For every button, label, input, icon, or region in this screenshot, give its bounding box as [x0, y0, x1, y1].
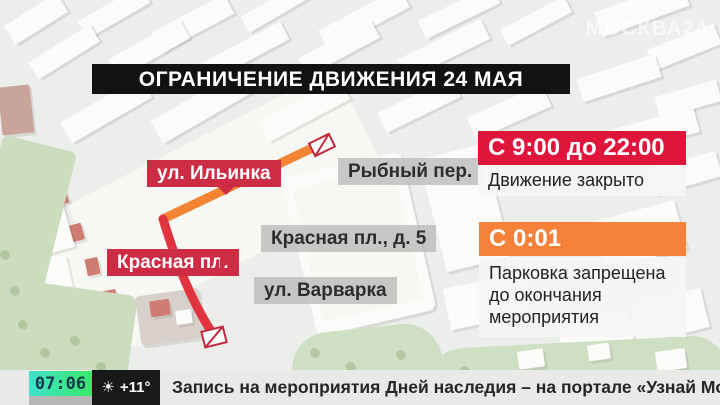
label-pointer — [220, 255, 228, 271]
street-label-ilinka: ул. Ильинка — [147, 160, 281, 187]
news-graphic-screen: МОСКВА24 ОГРАНИЧЕНИЕ ДВИЖЕНИЯ 24 МАЯ ул.… — [0, 0, 720, 405]
closure-time-badge: С 9:00 до 22:00 — [478, 131, 686, 165]
temperature: +11° — [120, 379, 151, 396]
label-pointer — [218, 187, 234, 195]
channel-logo: МОСКВА24 — [586, 17, 708, 41]
sun-icon: ☀ — [101, 380, 114, 395]
street-label-krasnaya-d5: Красная пл., д. 5 — [261, 225, 436, 252]
parking-note: Парковка запрещена до окончания мероприя… — [479, 257, 686, 337]
route-overlay — [0, 0, 720, 405]
clock-base — [29, 396, 92, 405]
clock: 07:06 — [29, 371, 92, 396]
news-ticker: Запись на мероприятия Дней наследия – на… — [172, 370, 720, 405]
street-label-rybny: Рыбный пер. — [338, 158, 482, 185]
street-label-varvarka: ул. Варварка — [254, 277, 397, 304]
street-label-krasnaya: Красная пл. — [107, 249, 239, 276]
closure-note: Движение закрыто — [478, 165, 686, 196]
route-end-marker-north — [309, 134, 335, 156]
headline-banner: ОГРАНИЧЕНИЕ ДВИЖЕНИЯ 24 МАЯ — [92, 64, 570, 94]
parking-time-badge: С 0:01 — [479, 222, 686, 256]
weather-widget: ☀ +11° — [92, 370, 160, 405]
